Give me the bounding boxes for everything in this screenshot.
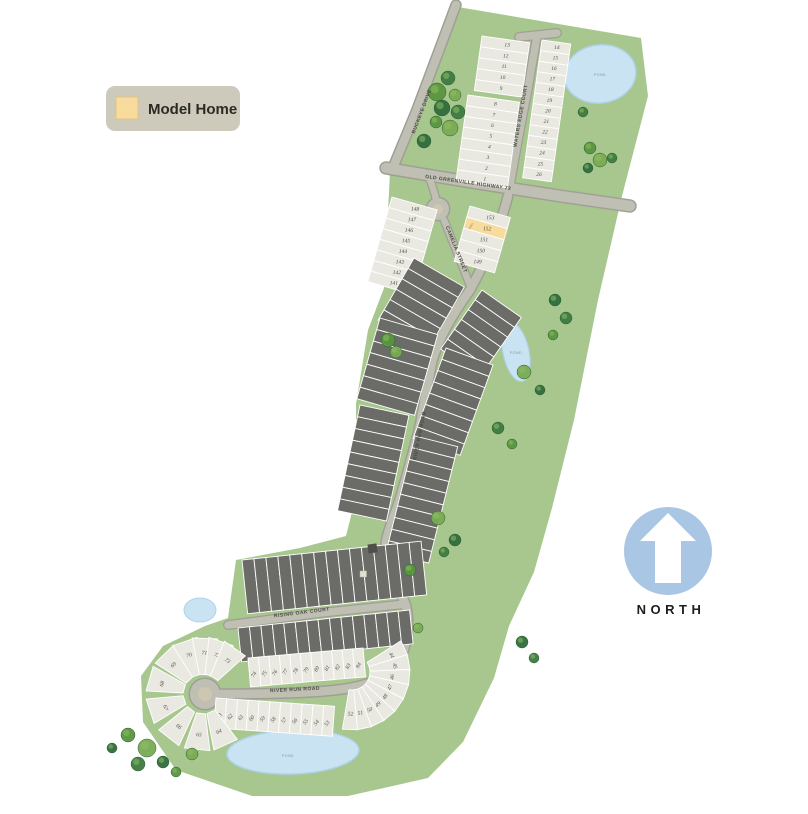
tree-highlight — [494, 424, 499, 429]
lot-number: 145 — [402, 237, 411, 244]
lot-number: 46 — [389, 674, 396, 680]
tree-highlight — [586, 144, 591, 149]
lot-number: 16 — [551, 66, 557, 72]
lot-number: 5 — [490, 134, 493, 140]
tree-highlight — [406, 566, 411, 571]
lot-number: 19 — [547, 98, 553, 104]
tree-highlight — [519, 367, 525, 373]
lot-number: 3 — [485, 155, 489, 161]
tree-highlight — [123, 730, 129, 736]
tree-highlight — [432, 118, 437, 123]
lot-number: 21 — [544, 119, 550, 125]
tree-highlight — [109, 744, 114, 749]
lot-number: 4 — [488, 143, 491, 150]
tree-highlight — [609, 154, 614, 159]
lot-number: 6 — [491, 123, 494, 129]
tree-highlight — [550, 331, 555, 336]
community-site-map: 1312111098765432114151617181920212223242… — [0, 0, 808, 814]
tree-highlight — [159, 758, 164, 763]
legend-label: Model Home — [148, 101, 237, 118]
lot-number: 20 — [545, 108, 551, 114]
lot-number: 65 — [196, 732, 202, 739]
tree-highlight — [444, 122, 451, 129]
tree-highlight — [595, 155, 601, 161]
lot-number: 11 — [502, 64, 507, 70]
tree-highlight — [441, 548, 446, 553]
lot-number: 9 — [500, 86, 503, 92]
lot-number: 25 — [538, 161, 544, 167]
lot-number: 141 — [390, 280, 399, 287]
tree-highlight — [451, 91, 456, 96]
tree-highlight — [383, 335, 389, 341]
tree-highlight — [562, 314, 567, 319]
lot-number: 22 — [542, 130, 548, 136]
lot-number: 151 — [480, 237, 489, 243]
lot-number: 12 — [503, 53, 509, 59]
lot-number: 150 — [477, 248, 486, 254]
tree-highlight — [518, 638, 523, 643]
north-indicator: NORTH — [624, 507, 712, 617]
tree-highlight — [419, 136, 425, 142]
lot-number: 7 — [493, 112, 496, 118]
tree-highlight — [585, 164, 590, 169]
legend-model-home: Model Home — [106, 86, 240, 131]
north-label: NORTH — [637, 602, 706, 617]
lot-number: 17 — [550, 77, 556, 83]
lot-number: 144 — [399, 248, 408, 255]
lot-number: 143 — [396, 258, 405, 265]
tree-highlight — [451, 536, 456, 541]
lot-group-waters-edge-west-upper: 131211109 — [474, 36, 529, 97]
lot-number: 18 — [548, 87, 554, 93]
pond-label-north: POND — [594, 73, 606, 77]
lot-number: 26 — [536, 172, 542, 178]
tree-highlight — [133, 759, 139, 765]
lot-number: 2 — [485, 166, 488, 172]
tree-highlight — [453, 107, 459, 113]
model-home-swatch — [116, 97, 138, 119]
lot-number: 52 — [348, 711, 354, 717]
lot-number: 15 — [553, 55, 559, 61]
tree-highlight — [433, 513, 439, 519]
lot-number: 148 — [411, 206, 420, 213]
tree-highlight — [580, 108, 585, 113]
lot-number: 8 — [494, 102, 497, 108]
tree-highlight — [188, 750, 193, 755]
pond-label-middle: POND — [510, 351, 522, 355]
lot-number: 142 — [393, 269, 402, 276]
lot-number: 14 — [554, 44, 560, 51]
tree-highlight — [392, 348, 397, 353]
tree-highlight — [443, 73, 449, 79]
lot-number: 24 — [539, 150, 545, 157]
pond-label-south: POND — [282, 754, 294, 758]
tree-highlight — [415, 624, 420, 629]
tree-highlight — [537, 386, 542, 391]
lot-number: 13 — [504, 42, 510, 48]
lot-number: 147 — [408, 216, 417, 223]
tree-highlight — [509, 440, 514, 445]
tree-highlight — [436, 102, 443, 109]
lot-number: 152 — [483, 226, 492, 232]
tree-highlight — [551, 296, 556, 301]
lot-number: 149 — [473, 258, 482, 265]
tree-highlight — [531, 654, 536, 659]
pond-small — [184, 598, 216, 622]
lot-number: 23 — [541, 140, 547, 146]
lot-number: 10 — [500, 75, 506, 81]
tree-highlight — [173, 768, 178, 773]
lot-number: 146 — [405, 227, 414, 234]
tree-highlight — [141, 741, 149, 749]
lot-number: 153 — [486, 215, 495, 221]
